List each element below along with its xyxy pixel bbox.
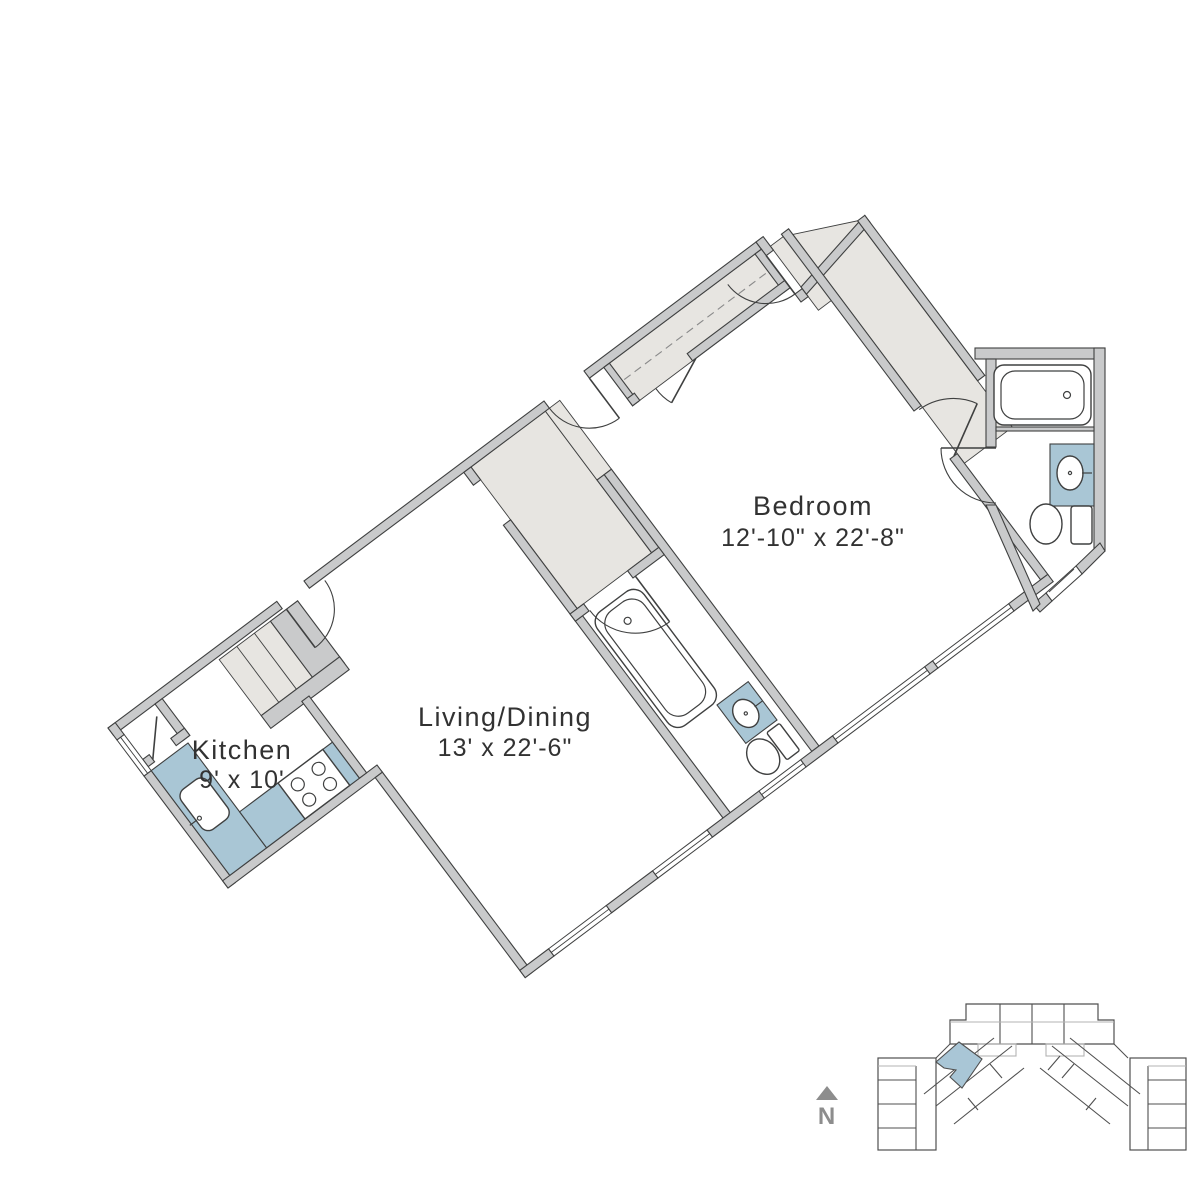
floor-plan-canvas: Bedroom 12'-10" x 22'-8" Living/Dining 1… xyxy=(0,0,1201,1201)
bedroom-dims: 12'-10" x 22'-8" xyxy=(721,524,905,552)
circulation-floors xyxy=(471,193,1012,702)
apartment-plan xyxy=(108,180,1108,1088)
key-plan xyxy=(878,1004,1186,1150)
north-arrow-icon xyxy=(816,1086,838,1100)
sink-vanity-2 xyxy=(1050,444,1094,506)
living-dims: 13' x 22'-6" xyxy=(438,734,573,762)
north-arrow: N xyxy=(816,1086,838,1130)
living-label: Living/Dining xyxy=(418,702,592,732)
bathtub-2 xyxy=(994,365,1091,425)
kitchen-label: Kitchen xyxy=(192,735,293,765)
bedroom-label: Bedroom xyxy=(753,491,873,521)
floor-plan-page: Bedroom 12'-10" x 22'-8" Living/Dining 1… xyxy=(0,0,1201,1201)
kitchen-dims: 9' x 10' xyxy=(199,766,285,794)
stairs xyxy=(219,601,349,729)
north-label: N xyxy=(818,1103,836,1130)
toilet-2 xyxy=(1030,504,1092,544)
